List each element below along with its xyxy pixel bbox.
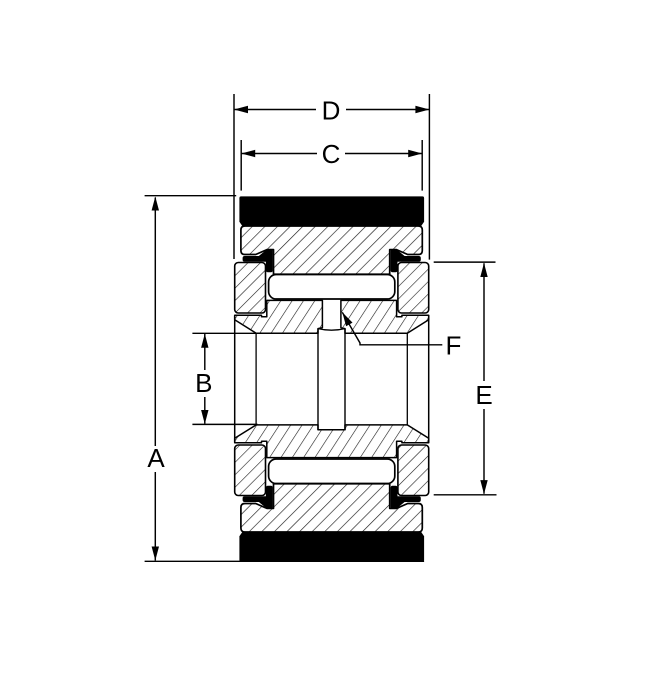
svg-text:F: F bbox=[446, 331, 462, 361]
svg-text:E: E bbox=[475, 380, 492, 410]
svg-text:B: B bbox=[195, 368, 212, 398]
svg-text:A: A bbox=[147, 443, 165, 473]
svg-text:D: D bbox=[322, 95, 341, 125]
svg-text:C: C bbox=[322, 139, 341, 169]
